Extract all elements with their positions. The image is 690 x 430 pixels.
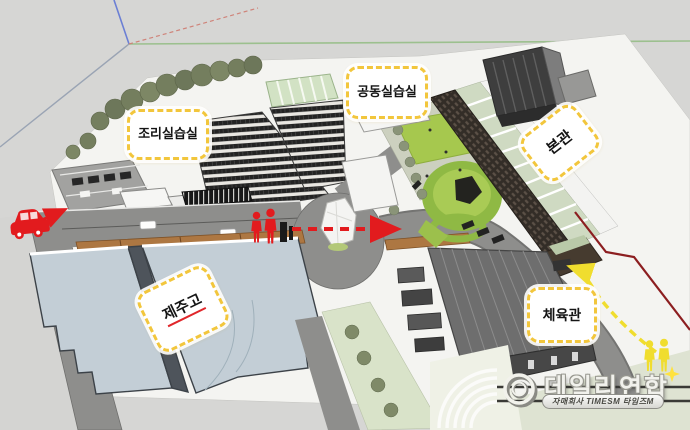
label-cooking-lab-text: 조리실습실 xyxy=(138,127,198,142)
label-gym-text: 체육관 xyxy=(543,307,582,323)
label-shared-lab-text: 공동실습실 xyxy=(357,85,417,100)
label-gym: 체육관 xyxy=(527,287,597,343)
label-jeju-high-text: 제주고 xyxy=(160,291,206,327)
label-main-hall-text: 본관 xyxy=(544,128,576,159)
label-cooking-lab: 조리실습실 xyxy=(127,109,209,160)
campus-3d-scene xyxy=(0,0,690,430)
watermark-tagline: 자매회사 TIMESM 타임즈M xyxy=(542,394,664,409)
watermark: 데일리연합 자매회사 TIMESM 타임즈M xyxy=(498,368,690,422)
label-shared-lab: 공동실습실 xyxy=(346,66,428,119)
site-plan-rendering: 조리실습실 공동실습실 본관 제주고 체육관 데일리연합 자매회사 TIMESM… xyxy=(0,0,690,430)
